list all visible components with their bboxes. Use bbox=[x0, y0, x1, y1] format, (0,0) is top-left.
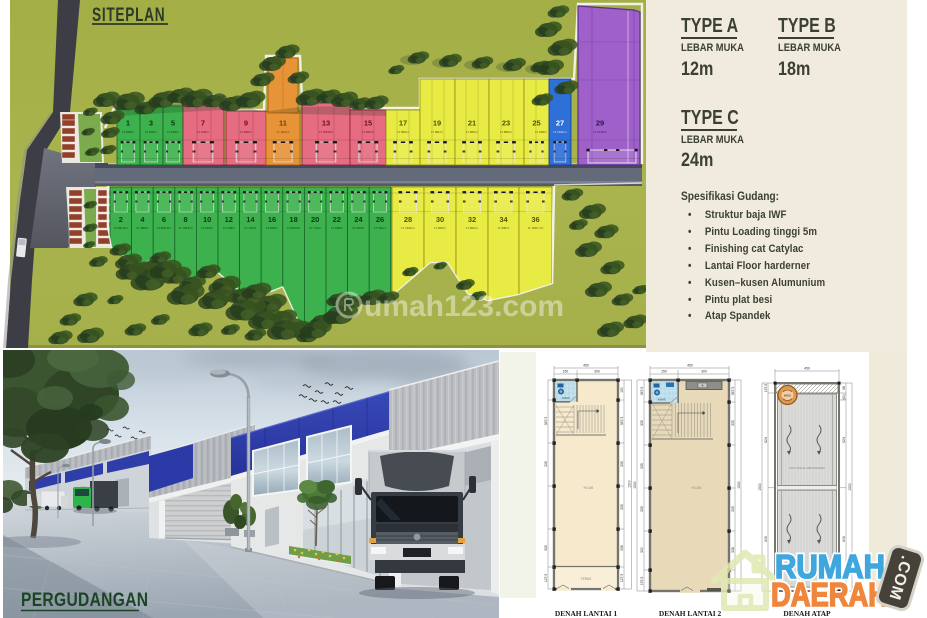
svg-text:LT 499m²: LT 499m² bbox=[137, 226, 149, 230]
svg-text:LT 1116m²: LT 1116m² bbox=[277, 130, 290, 134]
svg-text:98: 98 bbox=[842, 386, 846, 390]
svg-text:16: 16 bbox=[268, 215, 276, 224]
svg-text:LT 922m²: LT 922m² bbox=[266, 226, 278, 230]
svg-text:335: 335 bbox=[544, 461, 548, 467]
svg-text:LT 1024m²: LT 1024m² bbox=[553, 130, 566, 134]
svg-text:1530: 1530 bbox=[758, 483, 762, 491]
svg-text:624: 624 bbox=[764, 437, 768, 443]
svg-text:(60): (60) bbox=[842, 394, 846, 400]
svg-text:29: 29 bbox=[596, 119, 604, 128]
svg-text:157.5: 157.5 bbox=[764, 384, 768, 393]
svg-text:LT 466m²: LT 466m² bbox=[145, 130, 157, 134]
svg-text:367.5: 367.5 bbox=[544, 417, 548, 426]
svg-text:450: 450 bbox=[804, 367, 810, 371]
svg-text:450: 450 bbox=[583, 364, 589, 368]
svg-text:367.5: 367.5 bbox=[731, 387, 735, 396]
svg-text:LT 498m²: LT 498m² bbox=[535, 130, 547, 134]
svg-text:150: 150 bbox=[620, 387, 624, 393]
svg-text:LT 919m²: LT 919m² bbox=[201, 226, 213, 230]
svg-text:335: 335 bbox=[544, 545, 548, 551]
svg-text:TERAS: TERAS bbox=[581, 577, 592, 581]
svg-text:1530: 1530 bbox=[848, 483, 852, 491]
svg-text:LT 1026.7m²: LT 1026.7m² bbox=[528, 226, 544, 230]
svg-text:18: 18 bbox=[289, 215, 297, 224]
svg-text:WGS: WGS bbox=[784, 394, 791, 398]
svg-text:9: 9 bbox=[244, 119, 248, 128]
svg-text:336: 336 bbox=[620, 545, 624, 551]
svg-text:17: 17 bbox=[399, 119, 407, 128]
svg-text:PERGUDANGAN: PERGUDANGAN bbox=[21, 588, 148, 610]
svg-text:LT 981m²: LT 981m² bbox=[431, 130, 443, 134]
svg-text:330: 330 bbox=[640, 547, 644, 553]
svg-text:LT 885m²: LT 885m² bbox=[500, 130, 512, 134]
svg-text:6: 6 bbox=[162, 215, 166, 224]
svg-text:LT 738m²: LT 738m² bbox=[223, 226, 235, 230]
svg-text:LT 802m²: LT 802m² bbox=[466, 226, 478, 230]
svg-text:32: 32 bbox=[468, 215, 476, 224]
svg-text:LT 714m²: LT 714m² bbox=[309, 226, 321, 230]
svg-text:2: 2 bbox=[119, 215, 123, 224]
svg-text:ATAP ZINCALUME/SPANDEK: ATAP ZINCALUME/SPANDEK bbox=[789, 466, 825, 470]
svg-text:300: 300 bbox=[701, 370, 707, 374]
svg-text:LT 968m²: LT 968m² bbox=[240, 130, 252, 134]
svg-text:367.5: 367.5 bbox=[640, 387, 644, 396]
svg-text:157.5: 157.5 bbox=[640, 577, 644, 586]
svg-text:LT 661m²: LT 661m² bbox=[362, 130, 374, 134]
svg-text:LT 908m²: LT 908m² bbox=[498, 226, 510, 230]
svg-text:LT 780.8m²: LT 780.8m² bbox=[319, 130, 333, 134]
svg-text:150: 150 bbox=[661, 370, 667, 374]
svg-text:23: 23 bbox=[502, 119, 510, 128]
svg-text:300: 300 bbox=[594, 370, 600, 374]
svg-text:1: 1 bbox=[126, 119, 130, 128]
svg-text:LT 2776m²: LT 2776m² bbox=[593, 130, 606, 134]
svg-text:1500: 1500 bbox=[627, 480, 631, 488]
svg-text:LT 886m²: LT 886m² bbox=[466, 130, 478, 134]
svg-text:150: 150 bbox=[563, 370, 569, 374]
svg-text:+0.00: +0.00 bbox=[583, 485, 594, 490]
svg-text:LT 559.6m²: LT 559.6m² bbox=[157, 226, 171, 230]
svg-text:LT 980m²: LT 980m² bbox=[397, 130, 409, 134]
svg-text:SITEPLAN: SITEPLAN bbox=[92, 4, 165, 26]
svg-text:36: 36 bbox=[531, 215, 539, 224]
svg-text:30: 30 bbox=[436, 215, 444, 224]
svg-text:19: 19 bbox=[433, 119, 441, 128]
svg-text:5: 5 bbox=[171, 119, 175, 128]
svg-text:26: 26 bbox=[376, 215, 384, 224]
svg-text:335: 335 bbox=[640, 420, 644, 426]
svg-text:20: 20 bbox=[311, 215, 319, 224]
svg-text:LT 798m²: LT 798m² bbox=[331, 226, 343, 230]
svg-text:LT 2870m²: LT 2870m² bbox=[287, 226, 300, 230]
svg-text:DENAH LANTAI 1: DENAH LANTAI 1 bbox=[555, 609, 618, 618]
svg-text:367.5: 367.5 bbox=[620, 417, 624, 426]
svg-text:450: 450 bbox=[687, 364, 693, 368]
svg-text:LT 713m²: LT 713m² bbox=[245, 226, 257, 230]
svg-text:LT 460m²: LT 460m² bbox=[122, 130, 134, 134]
svg-text:22: 22 bbox=[333, 215, 341, 224]
svg-text:28: 28 bbox=[404, 215, 412, 224]
svg-text:34: 34 bbox=[499, 215, 508, 224]
svg-text:LT 1922m²: LT 1922m² bbox=[401, 226, 414, 230]
svg-text:LT 462.9m²: LT 462.9m² bbox=[114, 226, 128, 230]
svg-text:14: 14 bbox=[246, 215, 255, 224]
svg-text:LT 761m²: LT 761m² bbox=[374, 226, 386, 230]
svg-text:127.5: 127.5 bbox=[544, 574, 548, 583]
svg-text:7: 7 bbox=[201, 119, 205, 128]
svg-text:335: 335 bbox=[731, 506, 735, 512]
svg-text:LT 709.6m²: LT 709.6m² bbox=[179, 226, 193, 230]
svg-text:8: 8 bbox=[184, 215, 188, 224]
svg-text:10: 10 bbox=[203, 215, 211, 224]
svg-text:335: 335 bbox=[620, 461, 624, 467]
svg-text:335: 335 bbox=[640, 463, 644, 469]
svg-text:DAERAH: DAERAH bbox=[771, 576, 888, 613]
svg-text:335: 335 bbox=[731, 420, 735, 426]
svg-text:624: 624 bbox=[842, 437, 846, 443]
svg-text:335: 335 bbox=[620, 504, 624, 510]
svg-text:13: 13 bbox=[322, 119, 330, 128]
svg-text:LT 960m²: LT 960m² bbox=[434, 226, 446, 230]
svg-text:1530: 1530 bbox=[633, 481, 637, 489]
svg-text:25: 25 bbox=[532, 119, 540, 128]
svg-text:11: 11 bbox=[279, 119, 287, 128]
svg-text:KM/WC: KM/WC bbox=[562, 397, 571, 400]
svg-text:21: 21 bbox=[468, 119, 476, 128]
svg-text:KM/WC: KM/WC bbox=[658, 399, 667, 402]
svg-text:127.5: 127.5 bbox=[620, 574, 624, 583]
svg-text:335: 335 bbox=[640, 506, 644, 512]
svg-text:3: 3 bbox=[149, 119, 153, 128]
svg-text:LT 476m²: LT 476m² bbox=[167, 130, 179, 134]
svg-text:27: 27 bbox=[556, 119, 564, 128]
svg-text:LT 622m²: LT 622m² bbox=[353, 226, 365, 230]
svg-text:+3.00: +3.00 bbox=[691, 485, 702, 490]
svg-text:24: 24 bbox=[354, 215, 363, 224]
svg-text:umah123.com: umah123.com bbox=[364, 290, 564, 323]
svg-text:1530: 1530 bbox=[737, 481, 741, 489]
svg-text:LT 918m²: LT 918m² bbox=[197, 130, 209, 134]
svg-text:12: 12 bbox=[225, 215, 233, 224]
svg-text:15: 15 bbox=[364, 119, 372, 128]
